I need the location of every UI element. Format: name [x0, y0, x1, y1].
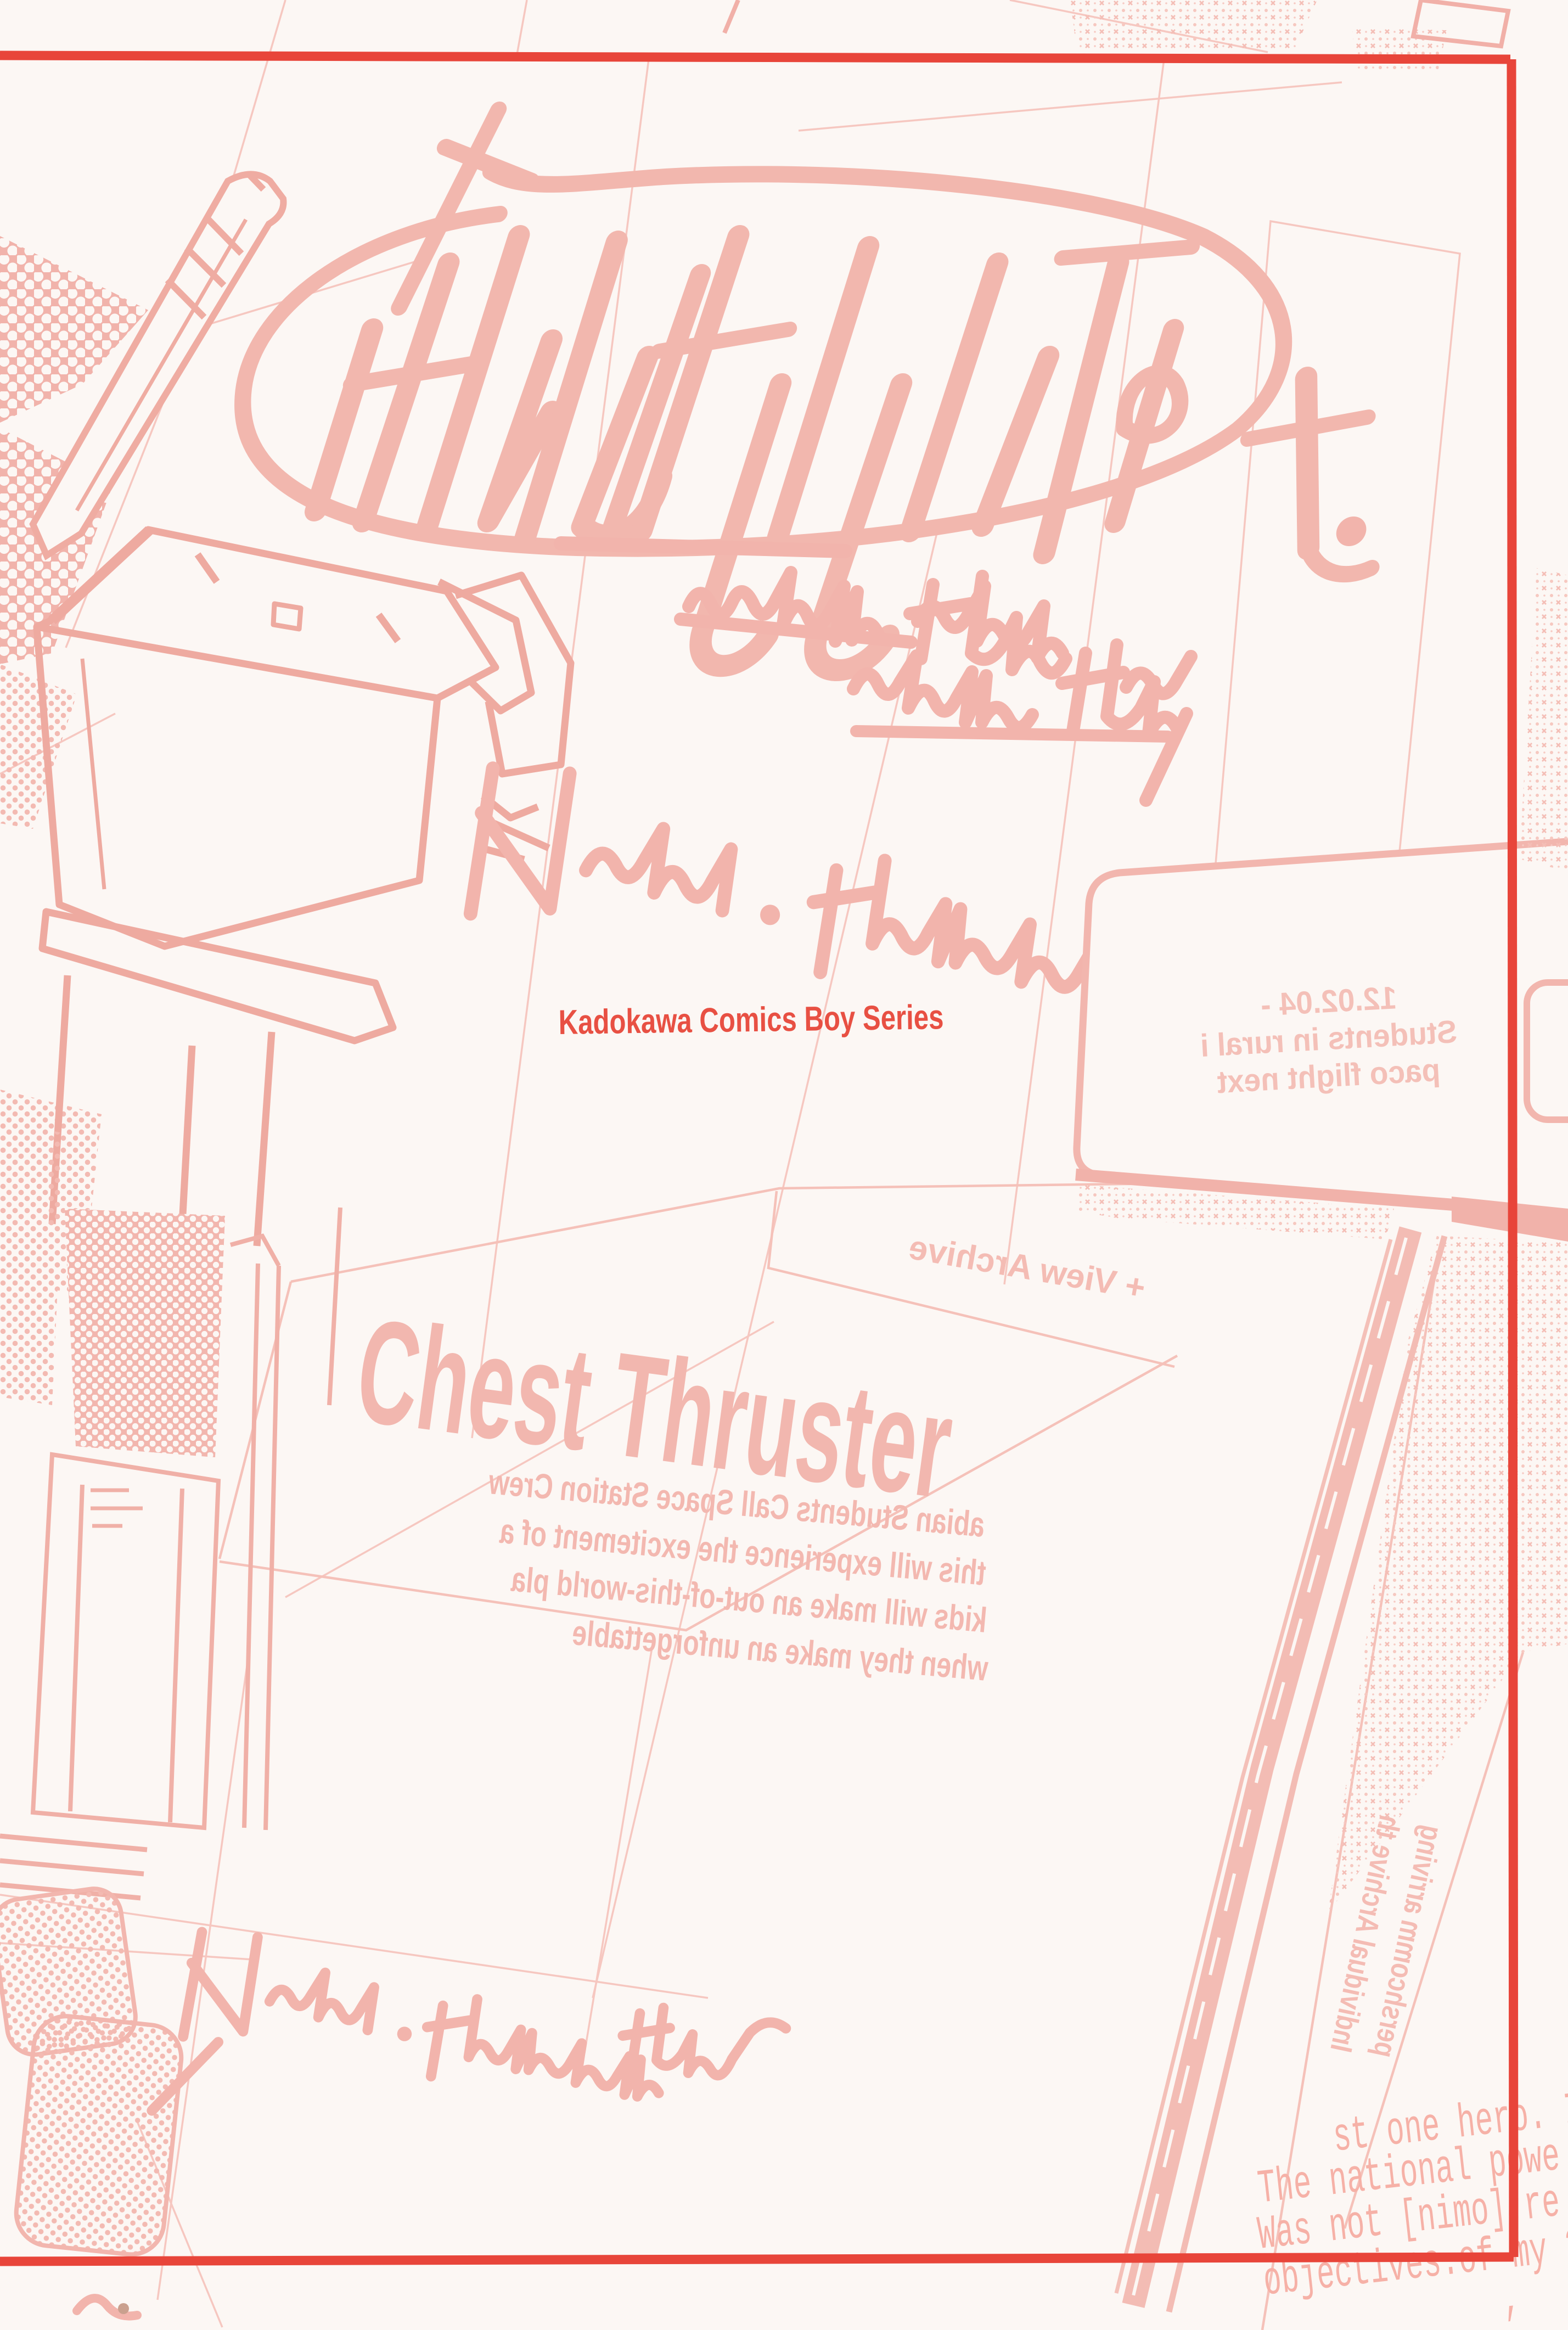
svg-text:12.02.04 -: 12.02.04 - [1260, 980, 1397, 1023]
svg-text:Kadokawa Comics Boy Series: Kadokawa Comics Boy Series [558, 997, 944, 1041]
